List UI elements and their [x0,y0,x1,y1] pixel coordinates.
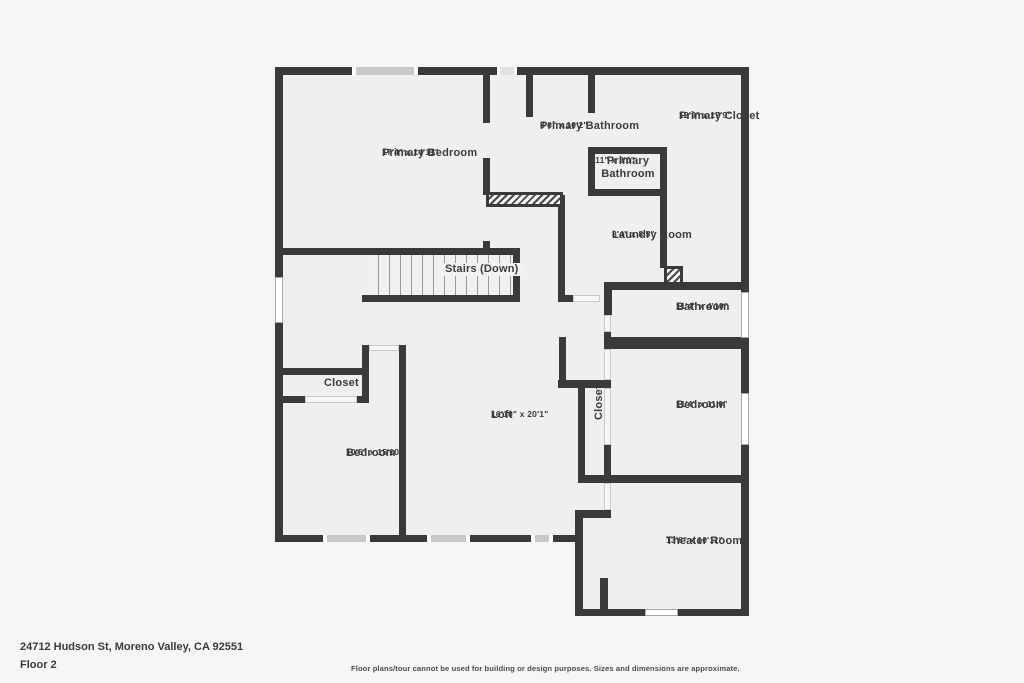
room-name: Closet [593,385,605,420]
wall [588,189,667,196]
wall [578,510,611,518]
wall [588,67,595,113]
room-dims: 13'8" x 10'11" [666,535,723,546]
wall [483,67,490,123]
hatched-wall [486,192,563,207]
wall [604,337,749,349]
window [531,535,553,542]
window [741,292,749,338]
room-dims: 8'6" x 10'2" [540,120,588,131]
room-name: Stairs (Down) [440,263,524,276]
wall [275,396,305,403]
wall [578,388,585,483]
door-opening [604,315,611,332]
room-name: Closet [324,377,359,390]
window [323,535,370,542]
door-opening [604,349,611,380]
floor-label: Floor 2 [20,659,57,671]
window [427,535,470,542]
door-opening [573,295,600,302]
wall [362,295,520,302]
door-opening [604,388,611,445]
wall [558,195,565,302]
wall [526,67,533,117]
disclaimer-text: Floor plans/tour cannot be used for buil… [351,664,740,673]
room-dims: 16'10" x 20'1" [491,409,548,420]
door-opening [305,396,357,403]
room-dims: 8'4" x 8'5" [612,229,655,240]
window [741,393,749,445]
wall [578,475,749,483]
wall [357,396,369,403]
wall [575,510,583,616]
door-opening [604,483,611,510]
window [497,67,517,75]
floor-area [279,483,583,539]
wall [483,158,490,195]
wall [362,345,369,403]
room-dims: 5'11" x 3'0" [588,155,635,166]
window [645,609,678,616]
room-dims: 12'9" x 17'9" [679,110,732,121]
floor-plan: Primary Bedroom 17'4" x 14'11" Primary B… [0,0,1024,683]
wall [399,345,406,535]
wall [604,282,612,315]
hatched-wall [664,266,683,285]
room-dims: 11'4" x 11'0" [676,399,728,410]
room-dims: 11'4" x 4'10" [676,301,728,312]
wall [604,332,611,349]
door-opening [369,345,399,351]
address-text: 24712 Hudson St, Moreno Valley, CA 92551 [20,641,243,653]
wall [275,248,520,255]
wall [588,147,667,154]
room-dims: 10'5" x 15'10" [346,447,403,458]
wall [558,295,573,302]
wall [600,578,608,609]
room-dims: 17'4" x 14'11" [382,147,439,158]
window [352,67,418,75]
window [275,277,283,323]
wall [275,368,362,375]
